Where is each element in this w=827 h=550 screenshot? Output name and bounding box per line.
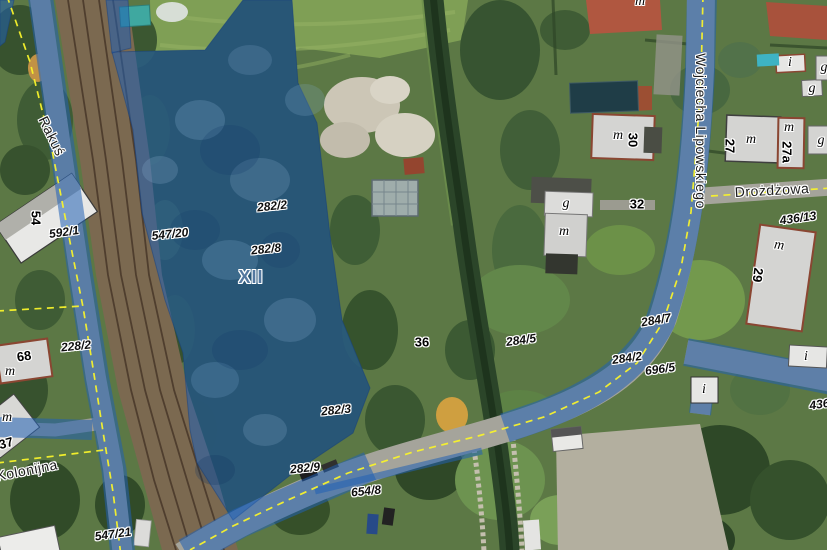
house-number-label: 36 <box>415 336 429 349</box>
map-viewport[interactable]: 592/1547/20282/2282/8228/2282/3282/9654/… <box>0 0 827 550</box>
parcel-number-label: 654/8 <box>350 483 381 498</box>
building-use-label: m <box>773 238 785 253</box>
map-labels: 592/1547/20282/2282/8228/2282/3282/9654/… <box>0 0 827 550</box>
building-use-label: m <box>635 0 645 9</box>
parcel-number-label: 284/7 <box>640 311 672 328</box>
house-number-label: 30 <box>627 133 640 147</box>
street-name-label: Wojciecha Lipowskiego <box>694 53 708 209</box>
building-use-label: i <box>702 383 706 397</box>
street-name-label: Drożdżowa <box>734 181 809 199</box>
building-use-label: m <box>746 133 756 147</box>
building-use-label: m <box>2 411 12 425</box>
building-use-label: m <box>5 365 15 379</box>
house-number-label: 27 <box>724 139 737 153</box>
house-number-label: 29 <box>751 267 766 283</box>
building-use-label: g <box>821 61 827 75</box>
parcel-number-label: 284/2 <box>611 350 642 366</box>
street-name-label: Rakuś <box>36 114 67 158</box>
parcel-number-label: 228/2 <box>60 338 91 353</box>
house-number-label: 54 <box>30 211 43 225</box>
parcel-number-label: 282/3 <box>320 402 351 417</box>
parcel-number-label: 547/20 <box>151 226 189 242</box>
parcel-number-label: 282/2 <box>256 198 287 213</box>
building-use-label: m <box>613 129 623 143</box>
house-number-label: 68 <box>16 349 32 364</box>
house-number-label: 27a <box>781 141 794 163</box>
building-use-label: g <box>809 82 816 96</box>
parcel-number-label: 436/13 <box>779 210 817 227</box>
house-number-label: 32 <box>630 198 644 211</box>
parcel-number-label: 547/21 <box>94 526 132 543</box>
parcel-number-label: 696/5 <box>644 361 675 377</box>
parcel-number-label: 284/5 <box>505 332 536 348</box>
building-use-label: m <box>784 121 794 135</box>
building-use-label: g <box>818 134 825 148</box>
building-use-label: i <box>788 56 792 70</box>
building-use-label: g <box>563 197 570 211</box>
building-use-label: i <box>804 350 808 364</box>
parcel-number-label: 592/1 <box>48 224 79 240</box>
parcel-number-label: 282/9 <box>289 460 320 475</box>
parcel-number-label: 436/ <box>809 396 827 411</box>
house-number-label: 37 <box>0 435 15 451</box>
section-label: XII <box>238 268 263 286</box>
building-use-label: m <box>559 225 569 239</box>
street-name-label: Kolonijna <box>0 457 59 483</box>
parcel-number-label: 282/8 <box>250 241 281 256</box>
